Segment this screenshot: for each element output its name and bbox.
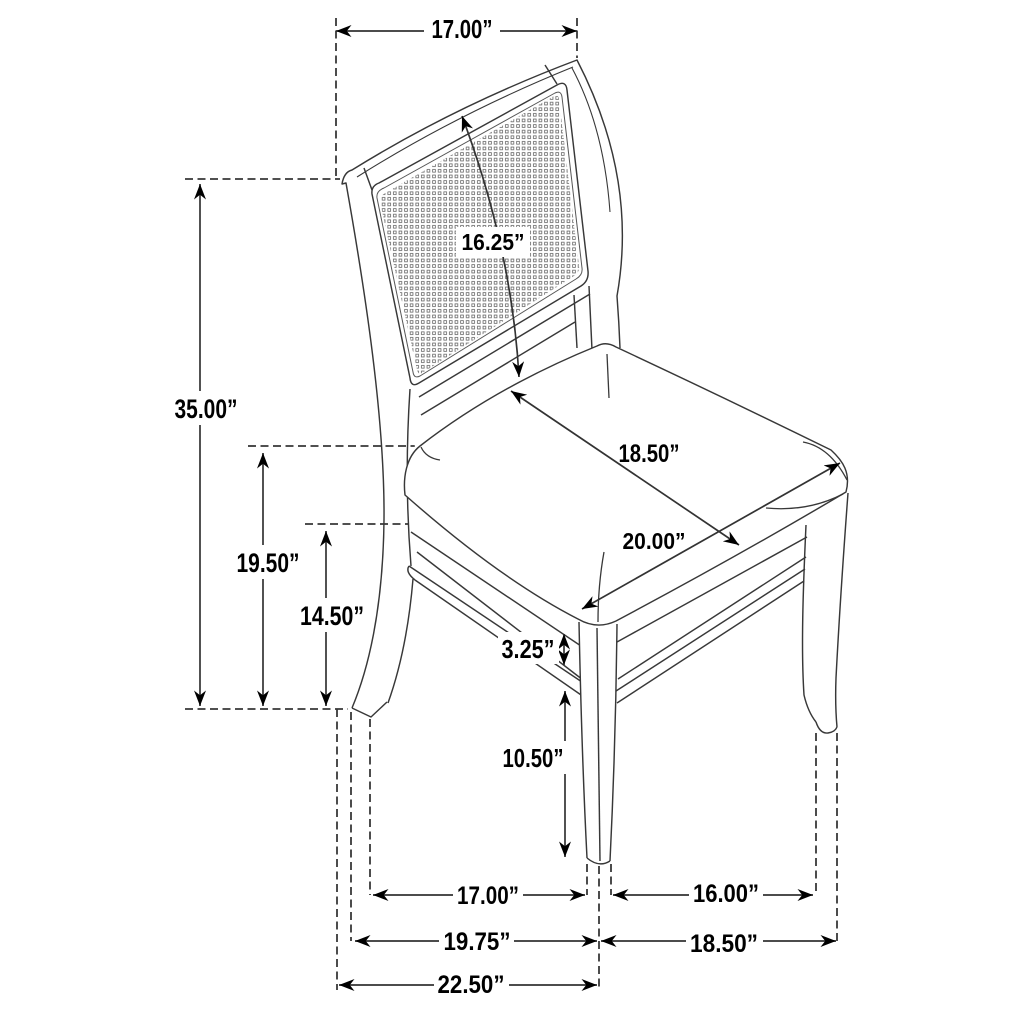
svg-text:18.50”: 18.50” <box>690 930 758 958</box>
svg-text:20.00”: 20.00” <box>623 528 686 554</box>
svg-text:17.00”: 17.00” <box>432 14 493 44</box>
svg-text:18.50”: 18.50” <box>619 440 680 468</box>
svg-text:10.50”: 10.50” <box>503 743 564 773</box>
svg-text:35.00”: 35.00” <box>175 394 238 424</box>
svg-text:16.00”: 16.00” <box>693 880 759 908</box>
svg-text:3.25”: 3.25” <box>502 634 555 664</box>
svg-text:16.25”: 16.25” <box>462 229 525 255</box>
svg-text:14.50”: 14.50” <box>300 601 364 631</box>
svg-text:22.50”: 22.50” <box>438 971 505 999</box>
svg-text:19.75”: 19.75” <box>444 928 511 956</box>
svg-text:19.50”: 19.50” <box>237 548 300 578</box>
svg-text:17.00”: 17.00” <box>457 882 519 910</box>
